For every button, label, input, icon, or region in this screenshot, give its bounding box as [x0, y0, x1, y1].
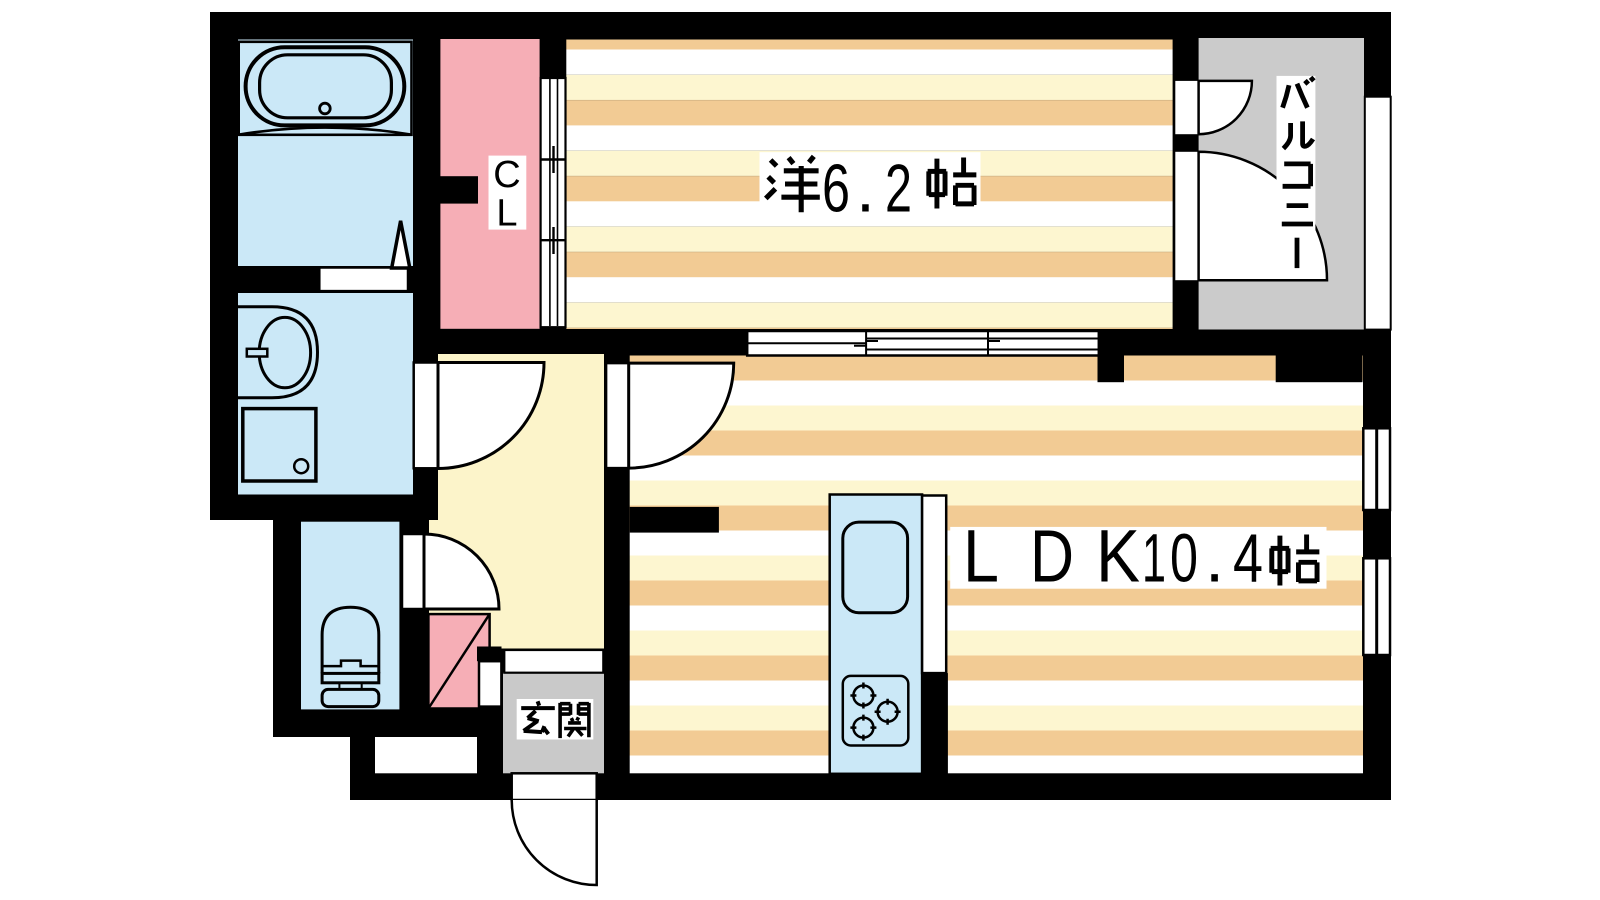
svg-text:6: 6 — [822, 151, 850, 227]
svg-text:K: K — [1096, 515, 1140, 598]
svg-text:4: 4 — [1233, 520, 1263, 597]
svg-text:D: D — [1030, 515, 1074, 598]
svg-text:0: 0 — [1170, 520, 1198, 597]
svg-text:2: 2 — [885, 151, 912, 227]
svg-text:C: C — [493, 154, 520, 196]
svg-text:.: . — [856, 151, 875, 227]
svg-text:.: . — [1205, 520, 1224, 597]
svg-text:1: 1 — [1142, 520, 1166, 597]
svg-text:L: L — [496, 193, 517, 235]
svg-text:L: L — [963, 515, 999, 598]
